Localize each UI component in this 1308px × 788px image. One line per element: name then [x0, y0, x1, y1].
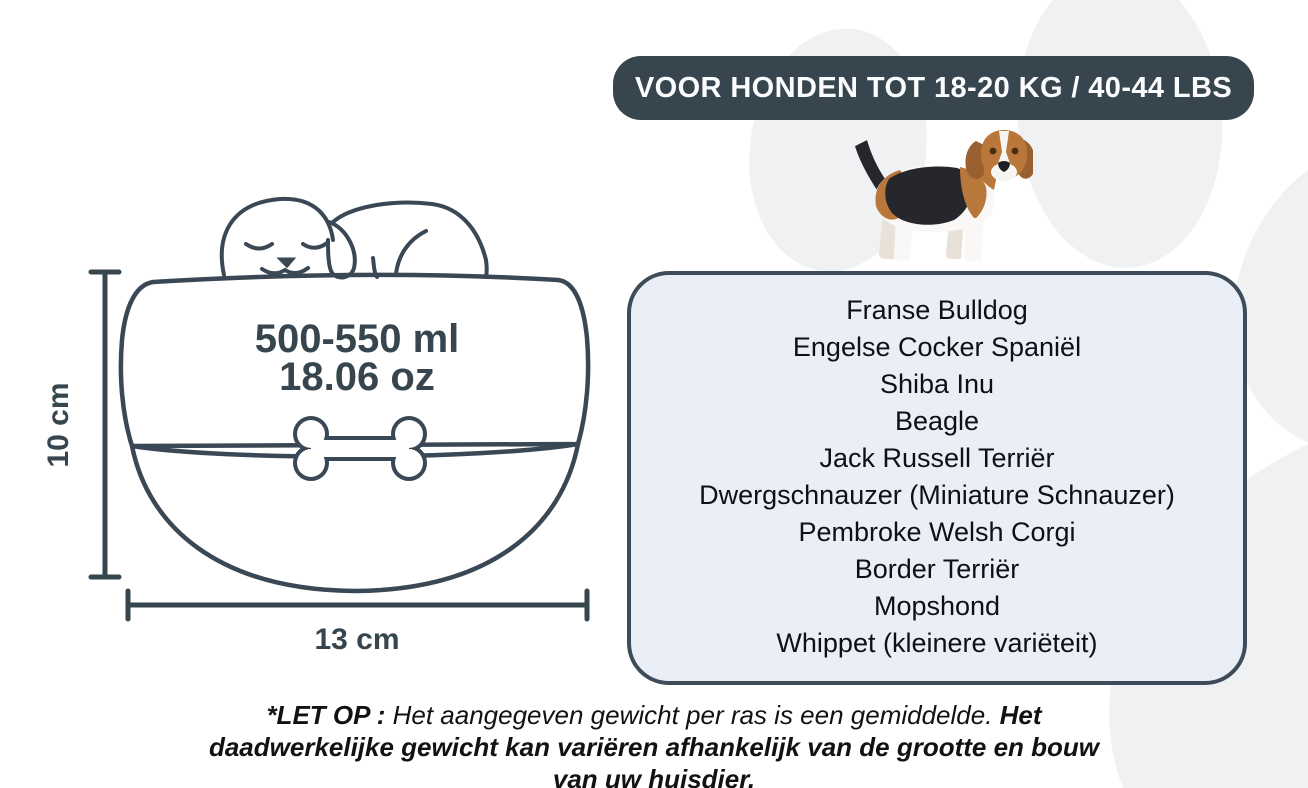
- footnote: *LET OP : Het aangegeven gewicht per ras…: [184, 699, 1124, 788]
- footnote-label: *LET OP :: [266, 700, 385, 730]
- footnote-normal-text: Het aangegeven gewicht per ras is een ge…: [385, 700, 999, 730]
- dog-eye: [303, 243, 327, 248]
- dog-mouth: [262, 268, 308, 273]
- dog-nose: [280, 259, 293, 266]
- width-value-label: 13 cm: [314, 623, 399, 656]
- breed-item: Mopshond: [631, 588, 1243, 625]
- weight-range-banner: VOOR HONDEN TOT 18-20 KG / 40-44 LBS: [613, 56, 1254, 120]
- dog-head: [222, 199, 333, 275]
- beagle-leg: [894, 220, 913, 261]
- breed-item: Whippet (kleinere variëteit): [631, 625, 1243, 662]
- beagle-leg: [964, 216, 984, 261]
- paw-toe-icon: [1008, 0, 1232, 275]
- beagle-ear: [965, 141, 984, 179]
- breed-item: Jack Russell Terriër: [631, 440, 1243, 477]
- breed-item: Dwergschnauzer (Miniature Schnauzer): [631, 477, 1243, 514]
- height-value-label: 10 cm: [42, 382, 75, 467]
- bowl-lower-outline: [132, 444, 578, 591]
- dog-eye: [246, 244, 272, 249]
- breed-list-box: Franse Bulldog Engelse Cocker Spaniël Sh…: [627, 271, 1247, 685]
- breed-item: Border Terriër: [631, 551, 1243, 588]
- infographic-canvas: VOOR HONDEN TOT 18-20 KG / 40-44 LBS: [0, 0, 1308, 788]
- beagle-eye: [990, 148, 997, 155]
- width-dimension-line: [128, 591, 587, 619]
- breed-item: Franse Bulldog: [631, 292, 1243, 329]
- dog-haunch: [396, 231, 426, 274]
- weight-range-text: VOOR HONDEN TOT 18-20 KG / 40-44 LBS: [635, 72, 1232, 105]
- breed-item: Pembroke Welsh Corgi: [631, 514, 1243, 551]
- beagle-illustration: [843, 126, 1033, 271]
- breed-item: Shiba Inu: [631, 366, 1243, 403]
- sleeping-dog-drawing: [222, 199, 487, 278]
- capacity-oz-label: 18.06 oz: [279, 355, 435, 399]
- breed-item: Engelse Cocker Spaniël: [631, 329, 1243, 366]
- beagle-eye: [1012, 148, 1019, 155]
- bowl-dimension-diagram: 10 cm 13 cm: [40, 178, 610, 663]
- breed-item: Beagle: [631, 403, 1243, 440]
- height-dimension-line: [91, 272, 119, 577]
